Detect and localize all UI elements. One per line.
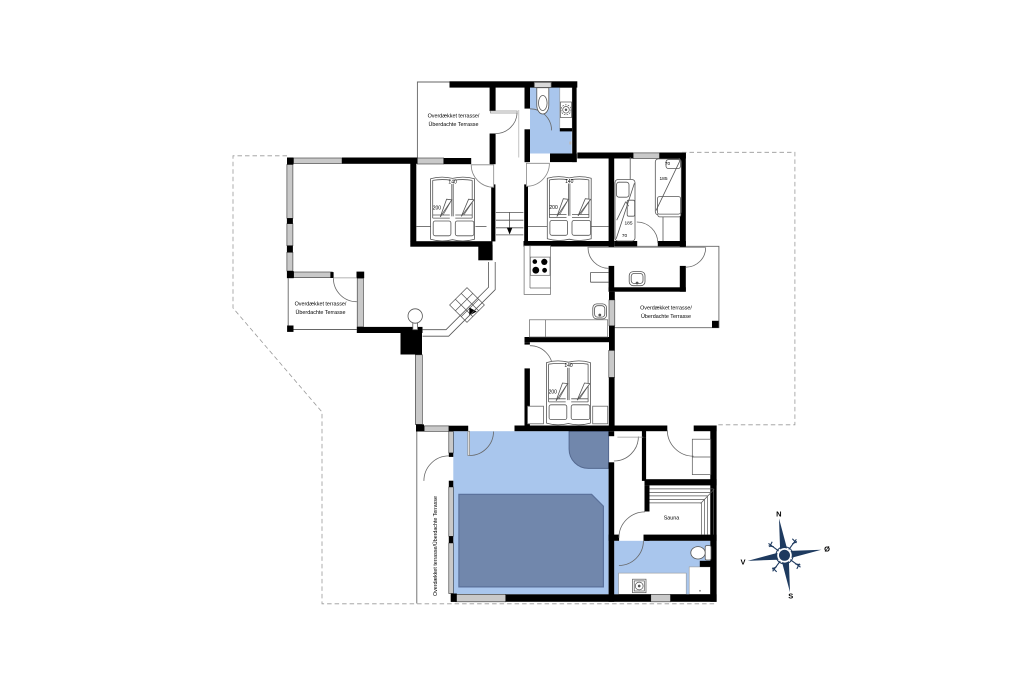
- svg-text:200: 200: [433, 206, 442, 212]
- svg-text:Overdækket terrasse/Überdachte: Overdækket terrasse/Überdachte Terrasse: [432, 496, 439, 596]
- svg-text:185: 185: [624, 221, 632, 227]
- svg-text:70: 70: [622, 233, 628, 239]
- svg-text:Überdachte Terrasse: Überdachte Terrasse: [296, 309, 346, 316]
- svg-text:Ø: Ø: [824, 545, 830, 554]
- svg-text:Überdachte Terrasse: Überdachte Terrasse: [641, 313, 691, 320]
- svg-text:Überdachte Terrasse: Überdachte Terrasse: [429, 121, 479, 128]
- svg-text:V: V: [740, 558, 745, 567]
- svg-text:200: 200: [549, 205, 558, 211]
- svg-text:N: N: [776, 510, 781, 519]
- svg-text:Overdækket terrasse/: Overdækket terrasse/: [428, 114, 480, 120]
- svg-text:Overdækket terrasse/: Overdækket terrasse/: [640, 306, 692, 312]
- svg-text:140: 140: [564, 363, 573, 369]
- svg-text:200: 200: [549, 389, 558, 395]
- svg-text:140: 140: [565, 179, 574, 185]
- svg-text:Sauna: Sauna: [664, 516, 680, 522]
- svg-text:S: S: [788, 592, 793, 601]
- svg-text:Overdækket terrasse/: Overdækket terrasse/: [295, 301, 347, 307]
- svg-text:140: 140: [448, 179, 457, 185]
- svg-text:70: 70: [665, 161, 671, 167]
- svg-text:185: 185: [659, 176, 667, 182]
